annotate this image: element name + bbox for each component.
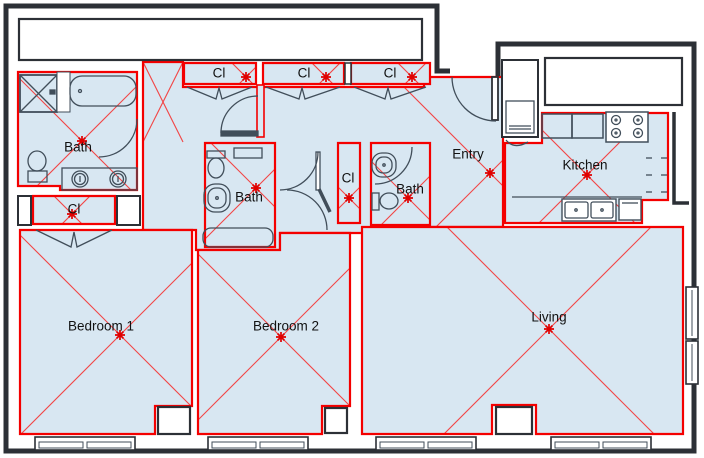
floor-plan-svg: EntryBathClClClClBathClBathKitchenBedroo… xyxy=(0,0,704,458)
living-shaft xyxy=(496,407,532,434)
room-label: Cl xyxy=(342,171,355,186)
dishwasher-icon xyxy=(619,199,641,220)
bedroom2-shaft xyxy=(325,408,347,433)
floor-plan: EntryBathClClClClBathClBathKitchenBedroo… xyxy=(0,0,704,458)
room-label: Living xyxy=(531,310,566,325)
room-label: Cl xyxy=(384,66,397,81)
corridor-partition-wall xyxy=(257,85,264,137)
room-area[interactable] xyxy=(198,233,350,434)
room-label: Bath xyxy=(396,182,424,197)
door-leaf xyxy=(221,131,258,136)
room-area[interactable] xyxy=(362,227,683,434)
bedroom1-shaft xyxy=(158,407,190,434)
closet-divider xyxy=(345,63,351,84)
room-label: Bath xyxy=(235,190,263,205)
room-label: Cl xyxy=(68,202,81,217)
room-label: Bath xyxy=(64,140,92,155)
room-label: Bedroom 2 xyxy=(253,319,319,334)
kitchen-side-wall xyxy=(674,112,689,203)
shower-handle xyxy=(50,90,55,94)
kitchen-upper-counter xyxy=(545,58,682,105)
room-label: Cl xyxy=(298,66,311,81)
room-label: Cl xyxy=(213,66,226,81)
wall-notch xyxy=(57,72,70,112)
void-space xyxy=(19,19,422,60)
closet-jamb-left xyxy=(18,196,31,225)
room-label: Kitchen xyxy=(562,158,607,173)
front-door-leaf xyxy=(492,77,498,120)
room-label: Bedroom 1 xyxy=(68,319,134,334)
room-area[interactable] xyxy=(18,72,137,190)
room-area[interactable] xyxy=(143,62,503,250)
room-label: Entry xyxy=(452,147,484,162)
closet-jamb-right xyxy=(117,196,140,225)
